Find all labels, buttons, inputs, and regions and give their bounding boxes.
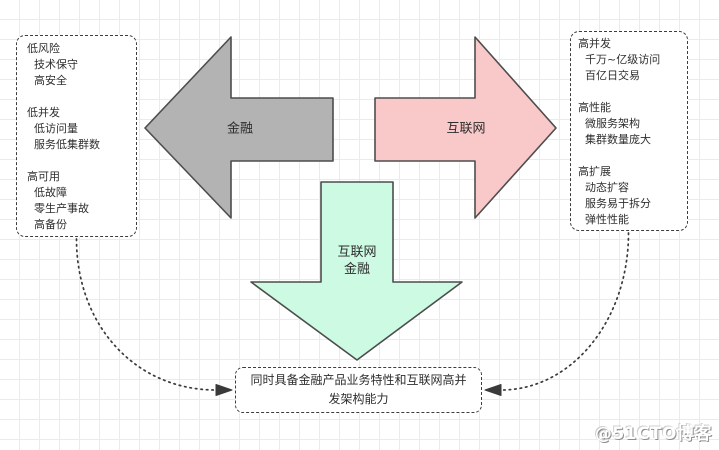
diagram-canvas: 低风险 技术保守 高安全 低并发 低访问量 服务低集群数 高可用 低故障 零生产… [0, 0, 719, 450]
finance-arrow-shape[interactable] [145, 37, 333, 218]
internet-traits-text: 高并发 千万~亿级访问 百亿日交易 高性能 微服务架构 集群数量庞大 高扩展 动… [578, 36, 685, 228]
right-connector-arrowhead-icon [485, 385, 501, 396]
internet-arrow-shape[interactable] [375, 37, 556, 218]
internet-traits-panel[interactable]: 高并发 千万~亿级访问 百亿日交易 高性能 微服务架构 集群数量庞大 高扩展 动… [570, 31, 688, 231]
left-connector-arrowhead-icon [216, 385, 232, 396]
finance-traits-text: 低风险 技术保守 高安全 低并发 低访问量 服务低集群数 高可用 低故障 零生产… [27, 41, 132, 233]
left-dotted-connector[interactable] [77, 239, 217, 390]
watermark-text: @51CTO博客 [595, 419, 712, 444]
internet-finance-arrow-shape[interactable] [251, 182, 462, 360]
finance-traits-panel[interactable]: 低风险 技术保守 高安全 低并发 低访问量 服务低集群数 高可用 低故障 零生产… [16, 35, 137, 237]
right-dotted-connector[interactable] [501, 233, 629, 390]
conclusion-box[interactable]: 同时具备金融产品业务特性和互联网高并 发架构能力 [235, 367, 482, 413]
